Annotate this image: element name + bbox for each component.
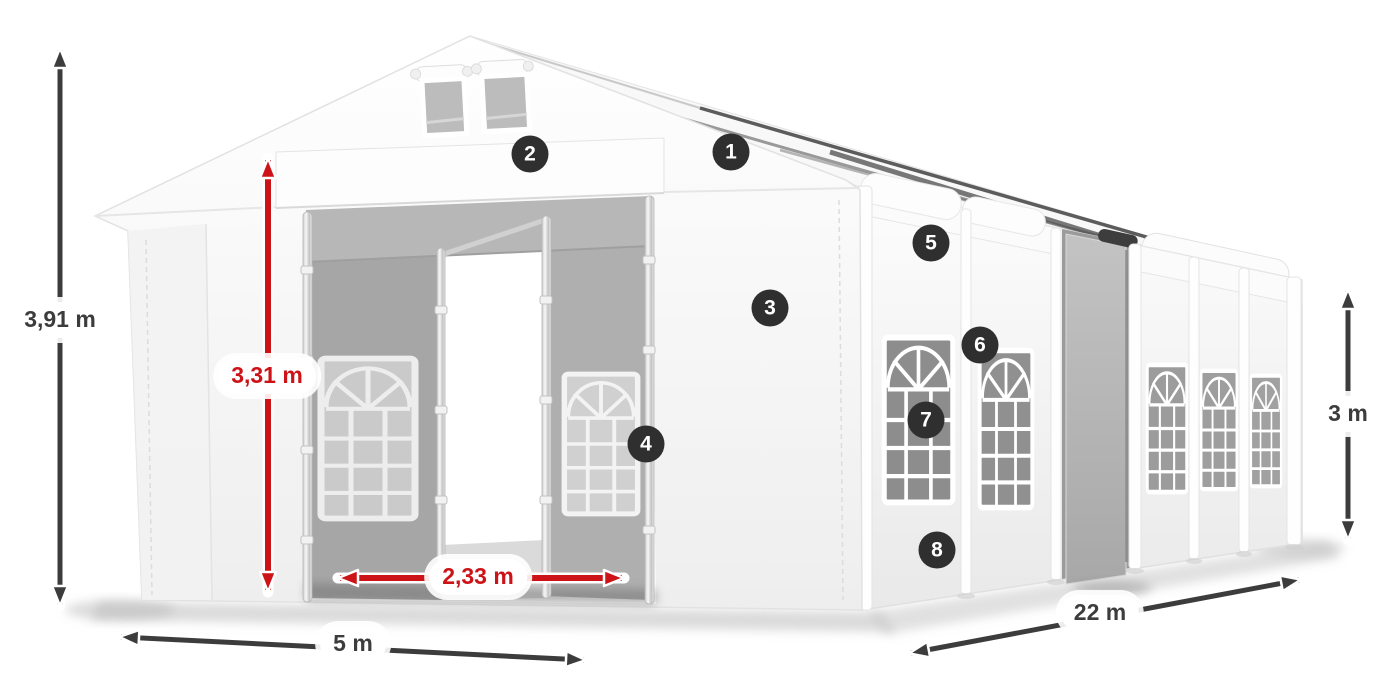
part-badge-7: 7 xyxy=(908,402,945,439)
dim-label-entrance-width: 2,33 m xyxy=(429,559,527,595)
part-badge-6: 6 xyxy=(962,327,999,364)
part-badge-4: 4 xyxy=(628,426,665,463)
dim-label-side-height: 3 m xyxy=(1315,396,1381,432)
dim-label-entrance-height: 3,31 m xyxy=(218,358,316,394)
dimension-arrows xyxy=(0,0,1400,700)
part-badge-5: 5 xyxy=(913,225,950,262)
part-badge-2: 2 xyxy=(512,136,549,173)
part-badge-1: 1 xyxy=(713,134,750,171)
part-badge-3: 3 xyxy=(752,290,789,327)
diagram-stage: 3,91 m 3,31 m 2,33 m 5 m 22 m 3 m 1 2 3 … xyxy=(0,0,1400,700)
dim-label-side-length: 22 m xyxy=(1061,595,1139,631)
part-badge-8: 8 xyxy=(919,532,956,569)
dim-label-total-height: 3,91 m xyxy=(11,302,109,338)
dim-label-front-width: 5 m xyxy=(320,626,386,662)
